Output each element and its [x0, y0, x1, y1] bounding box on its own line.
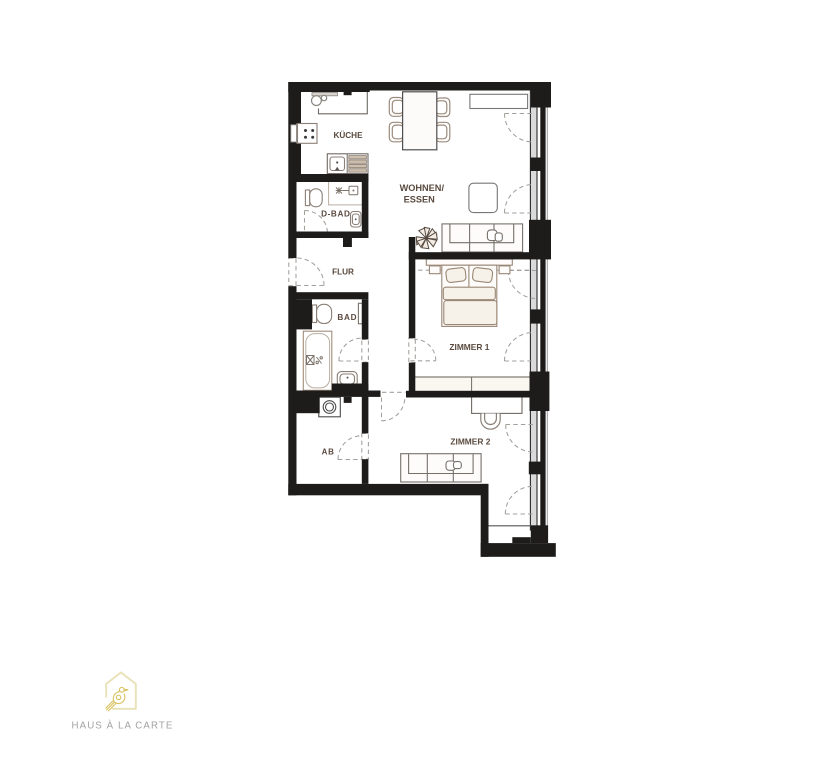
svg-text:ESSEN: ESSEN — [404, 194, 436, 204]
svg-text:HAUS À LA CARTE: HAUS À LA CARTE — [72, 721, 174, 732]
svg-text:KÜCHE: KÜCHE — [333, 130, 363, 140]
svg-text:ZIMMER 1: ZIMMER 1 — [449, 342, 489, 352]
svg-text:D-BAD: D-BAD — [321, 209, 350, 218]
svg-text:BAD: BAD — [337, 313, 357, 322]
svg-text:FLUR: FLUR — [332, 268, 354, 277]
svg-text:WOHNEN/: WOHNEN/ — [400, 183, 445, 193]
svg-text:ZIMMER 2: ZIMMER 2 — [450, 437, 490, 447]
svg-text:AB: AB — [322, 447, 335, 456]
